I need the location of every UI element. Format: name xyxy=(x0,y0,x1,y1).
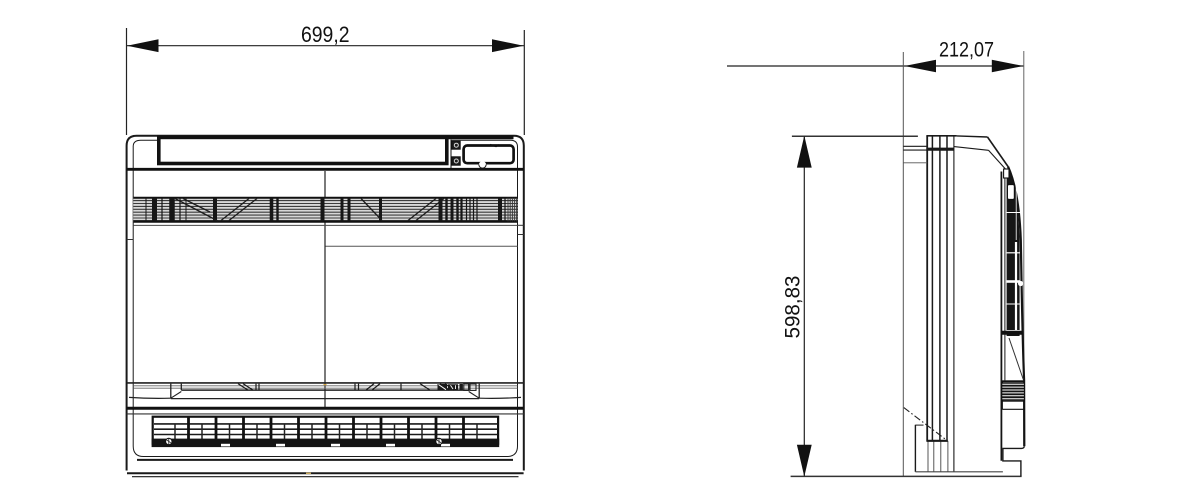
svg-text:598,83: 598,83 xyxy=(782,276,805,339)
svg-text:699,2: 699,2 xyxy=(301,22,350,47)
svg-text:212,07: 212,07 xyxy=(939,39,994,62)
